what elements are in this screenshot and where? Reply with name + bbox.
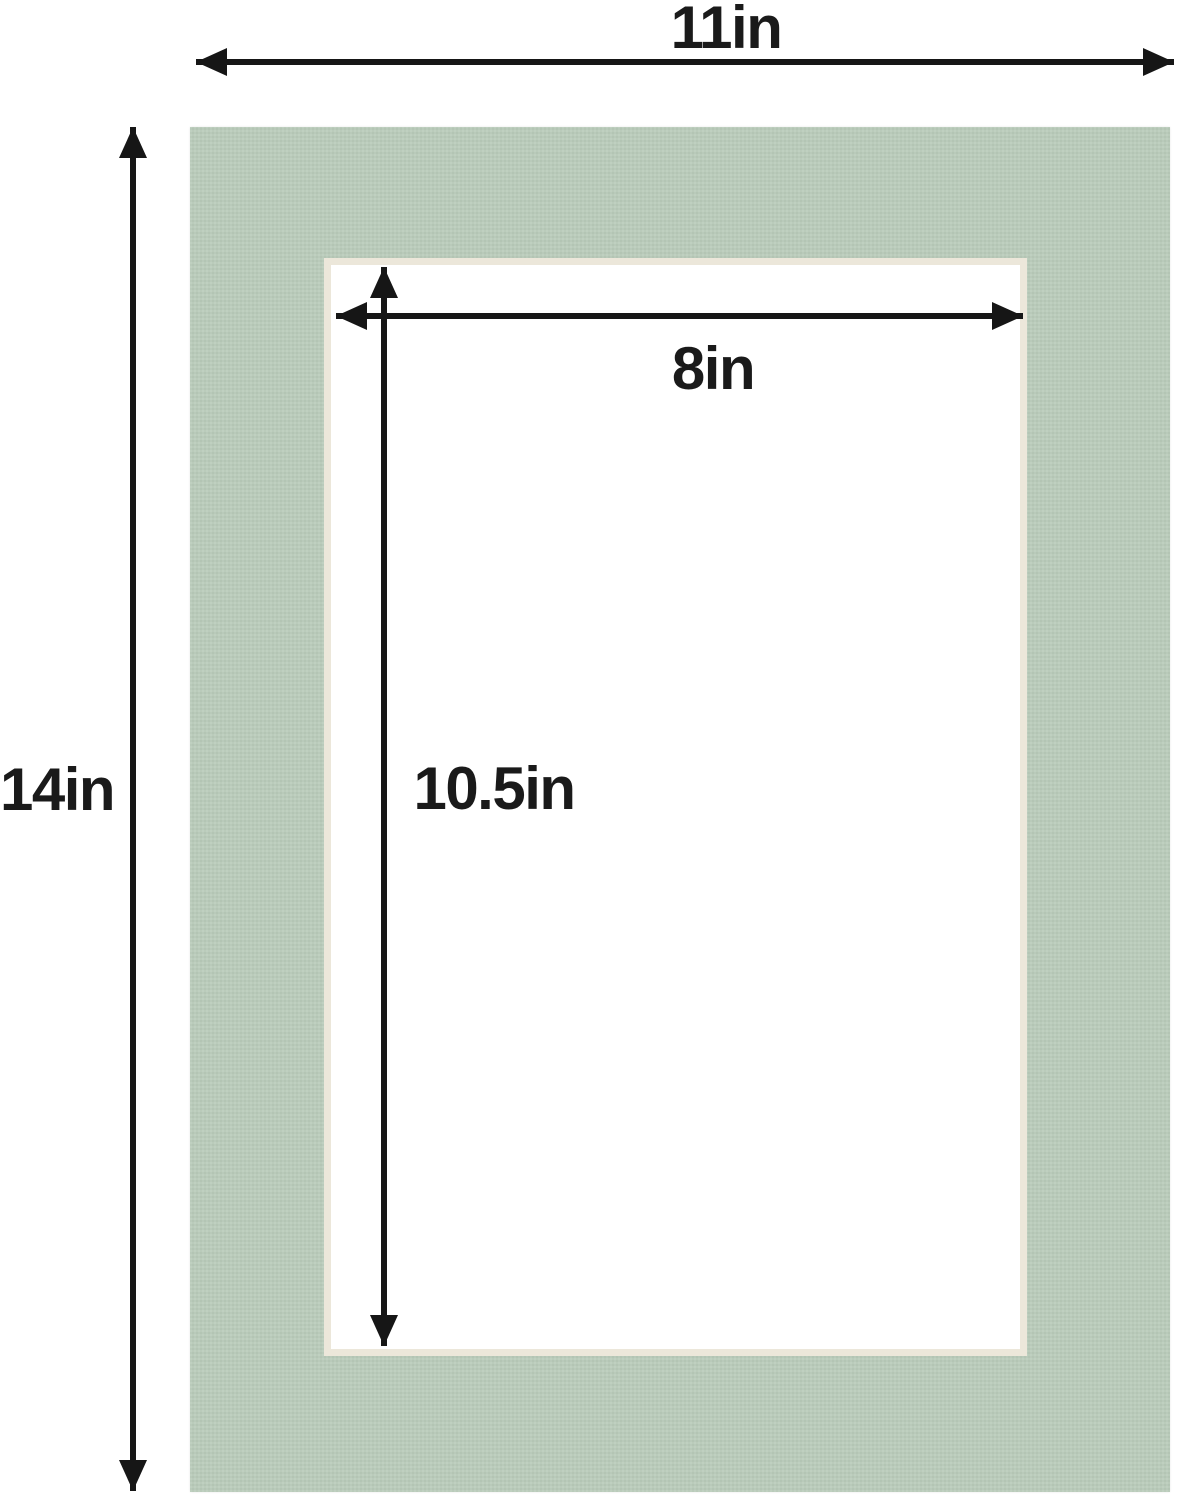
outer-height-label: 14in xyxy=(0,760,114,820)
opening-width-label: 8in xyxy=(672,339,754,399)
opening-height-label: 10.5in xyxy=(413,759,574,819)
mat-dimension-diagram: 11in 14in 8in 10.5in xyxy=(0,0,1186,1500)
mat-board xyxy=(190,127,1170,1492)
outer-width-label: 11in xyxy=(671,0,782,58)
